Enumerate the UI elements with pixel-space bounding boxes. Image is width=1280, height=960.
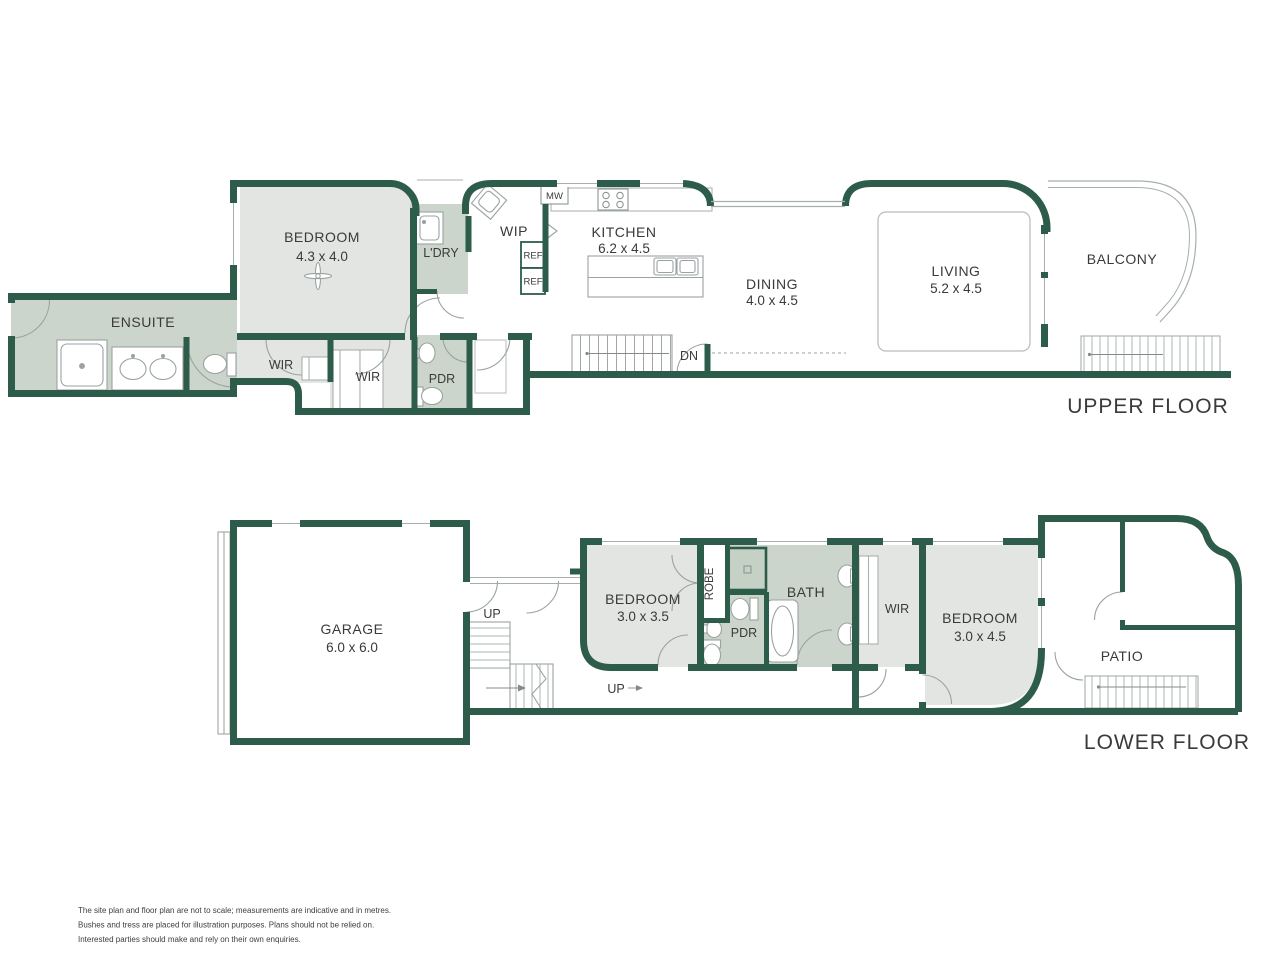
ensuite-label: ENSUITE xyxy=(111,314,175,330)
shower-drain xyxy=(80,364,85,369)
bath-shower xyxy=(728,548,766,590)
garage-dims: 6.0 x 6.0 xyxy=(326,640,378,655)
pdr-label: PDR xyxy=(429,372,455,386)
bedroom2-label: BEDROOM xyxy=(942,610,1018,626)
living-dims: 5.2 x 4.5 xyxy=(930,281,982,296)
window xyxy=(1038,558,1045,598)
toilet-bowl xyxy=(204,355,227,374)
disclaimer: The site plan and floor plan are not to … xyxy=(78,906,391,944)
pdr-label: PDR xyxy=(731,626,757,640)
wir-label: WIR xyxy=(356,370,380,384)
wip-label: WIP xyxy=(500,223,528,239)
toilet-bowl xyxy=(704,644,721,666)
window xyxy=(883,538,912,545)
window xyxy=(757,538,827,545)
basin-tap xyxy=(162,355,165,358)
kitchen-dims: 6.2 x 4.5 xyxy=(598,241,650,256)
window xyxy=(1041,234,1048,272)
window xyxy=(602,538,680,545)
dining-dims: 4.0 x 4.5 xyxy=(746,293,798,308)
pdr-basin xyxy=(707,621,722,638)
ref-label: REF xyxy=(524,251,543,262)
lower-floor-title: LOWER FLOOR xyxy=(1084,731,1250,754)
up-label: UP xyxy=(483,607,500,621)
robe-label: ROBE xyxy=(704,567,716,600)
disclaimer-line: The site plan and floor plan are not to … xyxy=(78,906,391,915)
disclaimer-line: Bushes and tress are placed for illustra… xyxy=(78,921,374,930)
toilet-bowl xyxy=(731,599,749,620)
toilet-tank xyxy=(750,598,758,620)
window xyxy=(933,538,1003,545)
window xyxy=(1038,606,1045,648)
bedroom2-dims: 3.0 x 4.5 xyxy=(954,629,1006,644)
dining-label: DINING xyxy=(746,276,798,292)
up-label: UP xyxy=(607,682,624,696)
basin-tap xyxy=(132,355,135,358)
balcony-label: BALCONY xyxy=(1087,251,1158,267)
bedroom1-dims: 3.0 x 3.5 xyxy=(617,609,669,624)
floor-plan-page: ENSUITE BEDROOM 4.3 x 4.0 L'DRY WIP MW R… xyxy=(0,0,1280,960)
window xyxy=(557,180,597,187)
bedroom-dims: 4.3 x 4.0 xyxy=(296,249,348,264)
upper-floor-plan: ENSUITE BEDROOM 4.3 x 4.0 L'DRY WIP MW R… xyxy=(8,177,1231,418)
pdr-toilet-bowl xyxy=(422,388,443,405)
pdr-basin xyxy=(419,343,435,363)
basin xyxy=(150,359,176,380)
upper-floor-title: UPPER FLOOR xyxy=(1067,395,1229,418)
toilet-tank xyxy=(227,353,236,376)
disclaimer-line: Interested parties should make and rely … xyxy=(78,935,301,944)
hall-closet xyxy=(475,340,506,393)
wir-label: WIR xyxy=(269,358,293,372)
patio-label: PATIO xyxy=(1101,648,1143,664)
lower-floor-plan: GARAGE 6.0 x 6.0 UP UP BEDROOM 3.0 x 3.5… xyxy=(218,515,1250,754)
window xyxy=(417,177,463,183)
mw-label: MW xyxy=(546,191,563,202)
window xyxy=(640,180,683,187)
kitchen-label: KITCHEN xyxy=(592,224,657,240)
sliding-door xyxy=(711,202,845,207)
bath-label: BATH xyxy=(787,584,825,600)
ref-label: REF xyxy=(524,277,543,288)
kitchen-bench xyxy=(551,188,712,211)
window xyxy=(402,520,430,527)
window xyxy=(1041,278,1048,324)
ldry-label: L'DRY xyxy=(423,246,459,260)
wir-label: WIR xyxy=(885,602,909,616)
living-label: LIVING xyxy=(932,263,981,279)
bedroom-label: BEDROOM xyxy=(284,229,360,245)
wir1-shelf xyxy=(302,357,330,380)
window xyxy=(230,203,237,265)
basin xyxy=(120,359,146,380)
arrow-right xyxy=(636,685,643,691)
laundry-tub-basin xyxy=(420,216,439,240)
dn-label: DN xyxy=(680,349,698,363)
window xyxy=(272,520,300,527)
floor-plan-canvas: ENSUITE BEDROOM 4.3 x 4.0 L'DRY WIP MW R… xyxy=(0,0,1280,960)
bedroom1-label: BEDROOM xyxy=(605,591,681,607)
garage-label: GARAGE xyxy=(321,621,384,637)
